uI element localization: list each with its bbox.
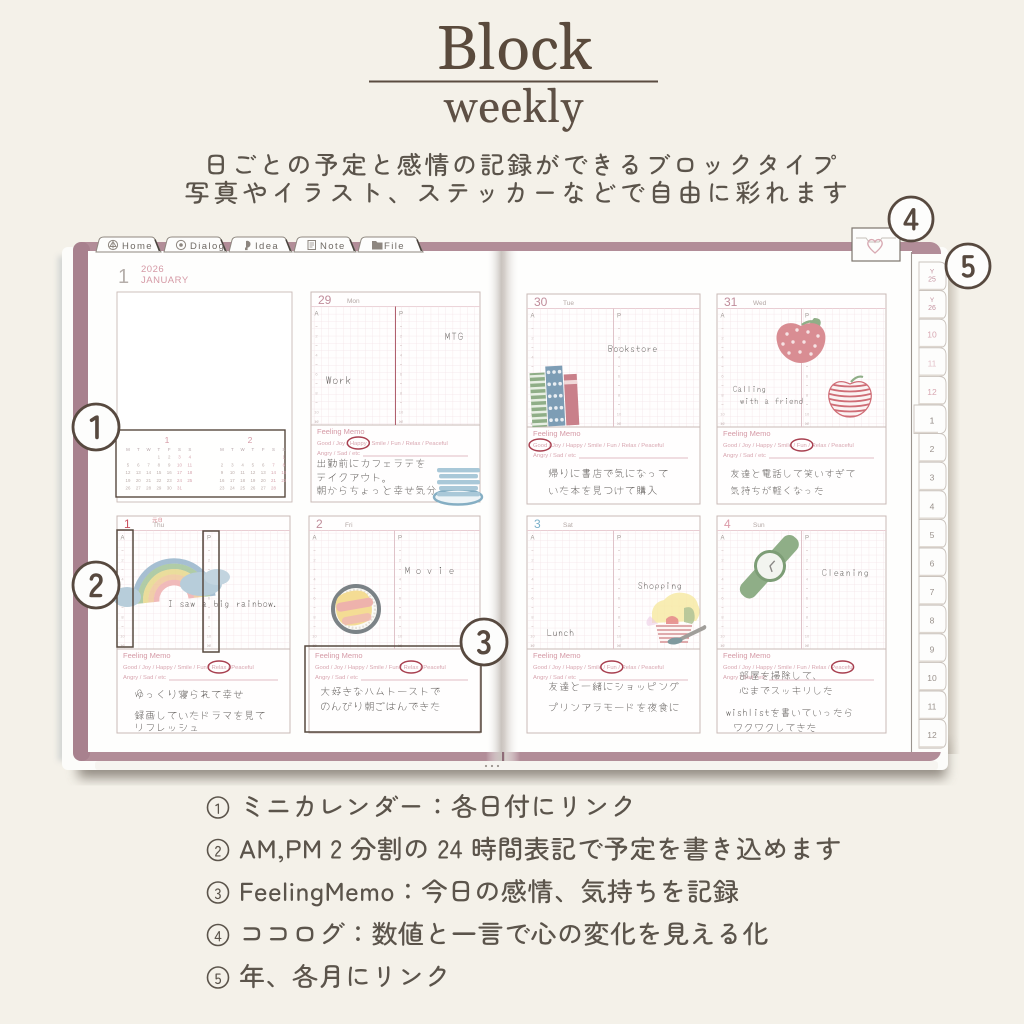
svg-text:12: 12 bbox=[126, 470, 131, 475]
svg-text:Feeling Memo: Feeling Memo bbox=[723, 651, 771, 660]
svg-text:Feeling Memo: Feeling Memo bbox=[533, 651, 581, 660]
svg-text:26: 26 bbox=[126, 486, 131, 491]
svg-text:10: 10 bbox=[617, 634, 622, 639]
svg-text:22: 22 bbox=[281, 478, 286, 483]
svg-text:31: 31 bbox=[177, 486, 182, 491]
svg-text:Feeling Memo: Feeling Memo bbox=[317, 427, 365, 436]
svg-text:Home: Home bbox=[122, 241, 153, 252]
svg-text:1: 1 bbox=[930, 416, 935, 426]
svg-text:13: 13 bbox=[261, 470, 266, 475]
svg-text:11: 11 bbox=[928, 702, 937, 712]
svg-text:Mon: Mon bbox=[347, 298, 360, 305]
svg-text:Good / Joy / Happy / Smile / F: Good / Joy / Happy / Smile / Fun / Relax… bbox=[315, 665, 446, 671]
svg-text:Wed: Wed bbox=[753, 300, 767, 307]
svg-text:Feeling Memo: Feeling Memo bbox=[723, 429, 771, 438]
svg-text:11: 11 bbox=[928, 358, 937, 368]
svg-text:22: 22 bbox=[156, 478, 161, 483]
svg-text:1: 1 bbox=[165, 435, 170, 445]
svg-text:JANUARY: JANUARY bbox=[141, 275, 189, 286]
svg-text:13: 13 bbox=[136, 470, 141, 475]
svg-text:T: T bbox=[158, 447, 161, 452]
svg-text:10: 10 bbox=[927, 330, 937, 340]
svg-text:16: 16 bbox=[220, 478, 225, 483]
svg-text:10: 10 bbox=[207, 634, 212, 639]
svg-text:A: A bbox=[312, 536, 316, 542]
svg-text:P: P bbox=[617, 314, 621, 320]
svg-text:Idea: Idea bbox=[255, 241, 279, 252]
svg-text:25: 25 bbox=[240, 486, 245, 491]
svg-text:12: 12 bbox=[314, 419, 319, 424]
svg-text:26: 26 bbox=[928, 305, 936, 312]
svg-text:30: 30 bbox=[167, 486, 172, 491]
svg-text:10: 10 bbox=[312, 634, 317, 639]
svg-text:A: A bbox=[720, 536, 724, 542]
svg-text:15: 15 bbox=[281, 470, 286, 475]
svg-text:12: 12 bbox=[720, 421, 725, 426]
svg-text:10: 10 bbox=[720, 412, 725, 417]
svg-text:30: 30 bbox=[534, 295, 548, 309]
svg-text:14: 14 bbox=[146, 470, 151, 475]
svg-text:2: 2 bbox=[930, 444, 935, 454]
svg-text:Tue: Tue bbox=[563, 300, 574, 307]
svg-text:24: 24 bbox=[230, 486, 235, 491]
svg-text:10: 10 bbox=[927, 673, 937, 683]
svg-text:P: P bbox=[398, 536, 402, 542]
svg-text:29: 29 bbox=[156, 486, 161, 491]
svg-text:12: 12 bbox=[927, 387, 937, 397]
svg-text:28: 28 bbox=[146, 486, 151, 491]
svg-text:26: 26 bbox=[250, 486, 255, 491]
svg-text:T: T bbox=[231, 447, 234, 452]
svg-text:T: T bbox=[137, 447, 140, 452]
svg-text:Feeling Memo: Feeling Memo bbox=[533, 429, 581, 438]
svg-text:Feeling Memo: Feeling Memo bbox=[123, 651, 171, 660]
svg-text:Dialog: Dialog bbox=[190, 241, 225, 252]
svg-text:P: P bbox=[617, 536, 621, 542]
svg-text:10: 10 bbox=[177, 462, 182, 467]
svg-text:16: 16 bbox=[167, 470, 172, 475]
svg-text:Thu: Thu bbox=[153, 522, 165, 529]
svg-text:10: 10 bbox=[720, 634, 725, 639]
svg-text:20: 20 bbox=[136, 478, 141, 483]
svg-text:19: 19 bbox=[126, 478, 131, 483]
svg-text:2: 2 bbox=[248, 435, 253, 445]
svg-text:F: F bbox=[262, 447, 265, 452]
svg-text:12: 12 bbox=[927, 730, 937, 740]
svg-text:Good / Joy / Happy / Smile / F: Good / Joy / Happy / Smile / Fun / Relax… bbox=[533, 443, 664, 449]
svg-text:Y: Y bbox=[930, 297, 935, 304]
svg-text:Angry / Sad / etc: Angry / Sad / etc bbox=[317, 451, 360, 457]
svg-text:11: 11 bbox=[188, 462, 193, 467]
svg-text:10: 10 bbox=[805, 412, 810, 417]
svg-text:Angry / Sad / etc: Angry / Sad / etc bbox=[533, 675, 576, 681]
svg-text:P: P bbox=[805, 314, 809, 320]
svg-text:Good / Joy / Happy / Smile / F: Good / Joy / Happy / Smile / Fun / Relax… bbox=[533, 665, 664, 671]
svg-text:31: 31 bbox=[724, 295, 738, 309]
svg-text:18: 18 bbox=[240, 478, 245, 483]
svg-text:Fri: Fri bbox=[345, 522, 353, 529]
svg-text:10: 10 bbox=[805, 634, 810, 639]
svg-text:7: 7 bbox=[930, 587, 935, 597]
svg-text:5: 5 bbox=[930, 530, 935, 540]
svg-text:S: S bbox=[178, 447, 181, 452]
svg-text:10: 10 bbox=[230, 470, 235, 475]
svg-text:1: 1 bbox=[124, 517, 131, 531]
svg-text:2026: 2026 bbox=[141, 264, 164, 275]
svg-text:29: 29 bbox=[318, 293, 332, 307]
svg-text:P: P bbox=[399, 312, 403, 318]
svg-text:F: F bbox=[168, 447, 171, 452]
svg-text:Angry / Sad / etc: Angry / Sad / etc bbox=[315, 675, 358, 681]
svg-text:4: 4 bbox=[930, 501, 935, 511]
svg-text:S: S bbox=[282, 447, 285, 452]
svg-text:15: 15 bbox=[156, 470, 161, 475]
svg-text:Angry / Sad / etc: Angry / Sad / etc bbox=[533, 453, 576, 459]
svg-text:3: 3 bbox=[534, 517, 541, 531]
svg-text:19: 19 bbox=[250, 478, 255, 483]
svg-text:24: 24 bbox=[177, 478, 182, 483]
svg-text:8: 8 bbox=[930, 616, 935, 626]
svg-text:6: 6 bbox=[930, 559, 935, 569]
svg-text:M: M bbox=[220, 447, 224, 452]
svg-text:Angry / Sad / etc: Angry / Sad / etc bbox=[723, 453, 766, 459]
svg-text:12: 12 bbox=[720, 643, 725, 648]
svg-text:M: M bbox=[126, 447, 130, 452]
svg-text:P: P bbox=[207, 536, 211, 542]
svg-text:23: 23 bbox=[167, 478, 172, 483]
svg-text:10: 10 bbox=[314, 410, 319, 415]
svg-text:11: 11 bbox=[240, 470, 245, 475]
svg-text:17: 17 bbox=[230, 478, 235, 483]
svg-text:10: 10 bbox=[120, 634, 125, 639]
svg-text:File: File bbox=[384, 241, 405, 252]
svg-text:25: 25 bbox=[187, 478, 192, 483]
svg-text:A: A bbox=[530, 536, 534, 542]
svg-text:21: 21 bbox=[146, 478, 151, 483]
svg-text:25: 25 bbox=[928, 277, 936, 284]
svg-text:10: 10 bbox=[530, 634, 535, 639]
svg-text:12: 12 bbox=[805, 421, 810, 426]
svg-text:23: 23 bbox=[220, 486, 225, 491]
svg-text:Note: Note bbox=[320, 241, 346, 252]
svg-text:P: P bbox=[805, 536, 809, 542]
svg-text:A: A bbox=[530, 314, 534, 320]
svg-text:Angry / Sad / etc: Angry / Sad / etc bbox=[123, 675, 166, 681]
svg-text:21: 21 bbox=[271, 478, 276, 483]
svg-text:12: 12 bbox=[617, 643, 622, 648]
svg-text:T: T bbox=[252, 447, 255, 452]
svg-text:12: 12 bbox=[207, 643, 212, 648]
svg-text:12: 12 bbox=[617, 421, 622, 426]
svg-text:27: 27 bbox=[261, 486, 266, 491]
svg-text:2: 2 bbox=[316, 517, 323, 531]
svg-text:10: 10 bbox=[617, 412, 622, 417]
svg-text:12: 12 bbox=[399, 419, 404, 424]
svg-text:27: 27 bbox=[136, 486, 141, 491]
svg-text:A: A bbox=[720, 314, 724, 320]
svg-text:12: 12 bbox=[250, 470, 255, 475]
svg-text:Sun: Sun bbox=[753, 522, 765, 529]
svg-text:17: 17 bbox=[177, 470, 182, 475]
svg-text:Y: Y bbox=[930, 269, 935, 276]
svg-text:Good / Joy / Happy / Smile / F: Good / Joy / Happy / Smile / Fun / Relax… bbox=[723, 443, 854, 449]
svg-text:1: 1 bbox=[118, 266, 129, 288]
svg-text:12: 12 bbox=[530, 643, 535, 648]
svg-text:20: 20 bbox=[261, 478, 266, 483]
svg-text:S: S bbox=[188, 447, 191, 452]
svg-text:14: 14 bbox=[271, 470, 276, 475]
svg-text:9: 9 bbox=[930, 644, 935, 654]
svg-text:28: 28 bbox=[271, 486, 276, 491]
svg-text:Feeling Memo: Feeling Memo bbox=[315, 651, 363, 660]
svg-text:S: S bbox=[272, 447, 275, 452]
svg-text:12: 12 bbox=[805, 643, 810, 648]
svg-text:4: 4 bbox=[724, 517, 731, 531]
svg-text:18: 18 bbox=[187, 470, 192, 475]
svg-text:Angry / Sad / etc: Angry / Sad / etc bbox=[723, 675, 766, 681]
svg-text:Good / Joy / Happy / Smile / F: Good / Joy / Happy / Smile / Fun / Relax… bbox=[123, 665, 254, 671]
svg-text:Good / Joy / Happy / Smile / F: Good / Joy / Happy / Smile / Fun / Relax… bbox=[317, 441, 448, 447]
svg-text:10: 10 bbox=[398, 634, 403, 639]
svg-text:3: 3 bbox=[930, 473, 935, 483]
svg-text:10: 10 bbox=[399, 410, 404, 415]
svg-text:A: A bbox=[120, 536, 124, 542]
svg-text:Sat: Sat bbox=[563, 522, 573, 529]
svg-text:A: A bbox=[314, 312, 318, 318]
